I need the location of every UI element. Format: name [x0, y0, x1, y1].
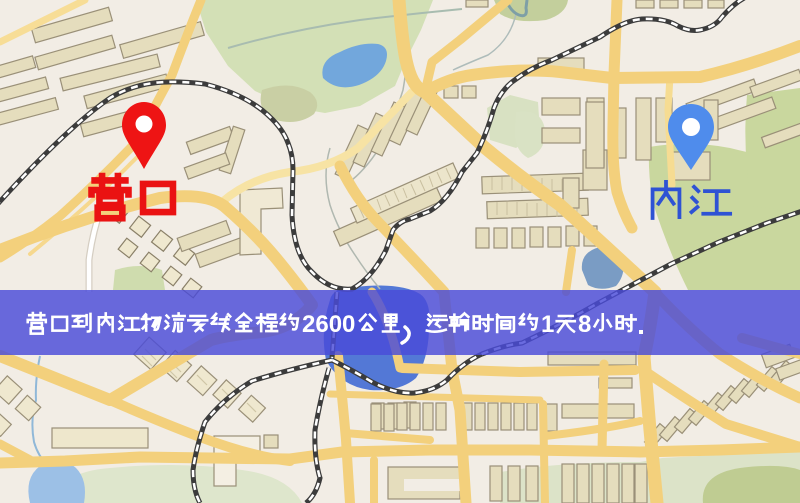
- svg-text:1: 1: [541, 311, 554, 338]
- svg-text:2600: 2600: [302, 311, 355, 338]
- svg-text:8: 8: [578, 311, 591, 338]
